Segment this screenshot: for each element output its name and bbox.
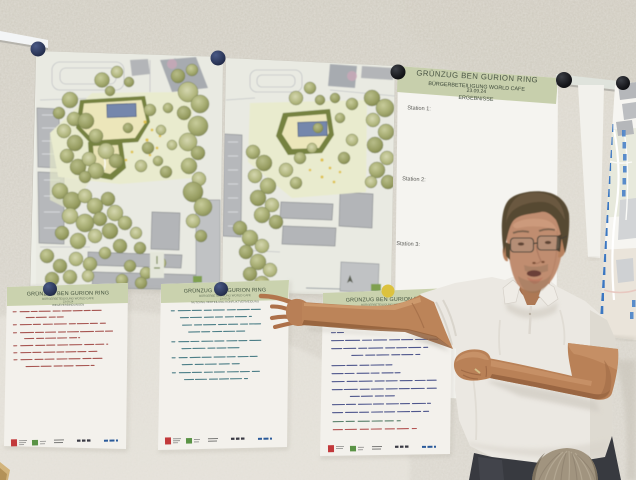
svg-text:Station 3:: Station 3: <box>396 241 420 248</box>
svg-text:Station 1:: Station 1: <box>407 105 431 112</box>
svg-text:23.09.24: 23.09.24 <box>466 88 486 95</box>
svg-text:WEGEVERBINDUNGEN: WEGEVERBINDUNGEN <box>52 303 84 307</box>
svg-text:Station 2:: Station 2: <box>402 176 426 183</box>
